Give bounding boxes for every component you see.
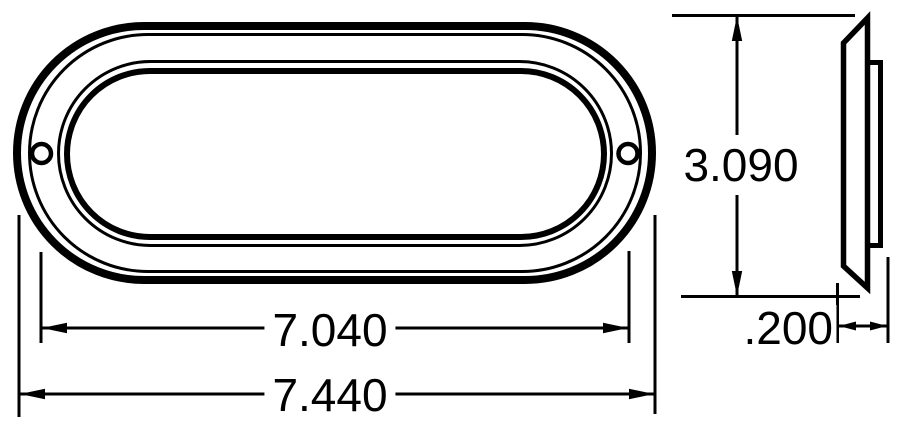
- dim-overall-width-arrow-right: [629, 389, 654, 399]
- dim-label-height: 3.090: [679, 135, 802, 195]
- side-view-lens-profile: [844, 18, 868, 288]
- mounting-hole-right: [619, 144, 638, 163]
- dim-depth-arrow-left: [839, 322, 856, 331]
- dim-depth-arrow-right: [870, 322, 887, 331]
- lens-bezel-outline: [59, 62, 612, 246]
- dim-height-arrow-up: [732, 16, 742, 41]
- front-view: [17, 26, 652, 280]
- dim-label-overall-width: 7.440: [264, 372, 395, 418]
- dim-label-depth: .200: [740, 305, 836, 351]
- side-view: [844, 18, 881, 288]
- dim-label-inner-width: 7.040: [264, 307, 395, 353]
- dim-inner-width-arrow-right: [603, 323, 628, 333]
- outer-flange-outline: [17, 26, 652, 280]
- drawing-line-art: [0, 0, 906, 431]
- technical-drawing: 3.090 7.040 7.440 .200: [0, 0, 906, 431]
- dim-inner-width-arrow-left: [42, 323, 67, 333]
- dim-height-arrow-down: [732, 271, 742, 296]
- lens-opening-outline: [67, 71, 604, 237]
- mounting-hole-left: [32, 144, 51, 163]
- dim-overall-width-arrow-left: [20, 389, 45, 399]
